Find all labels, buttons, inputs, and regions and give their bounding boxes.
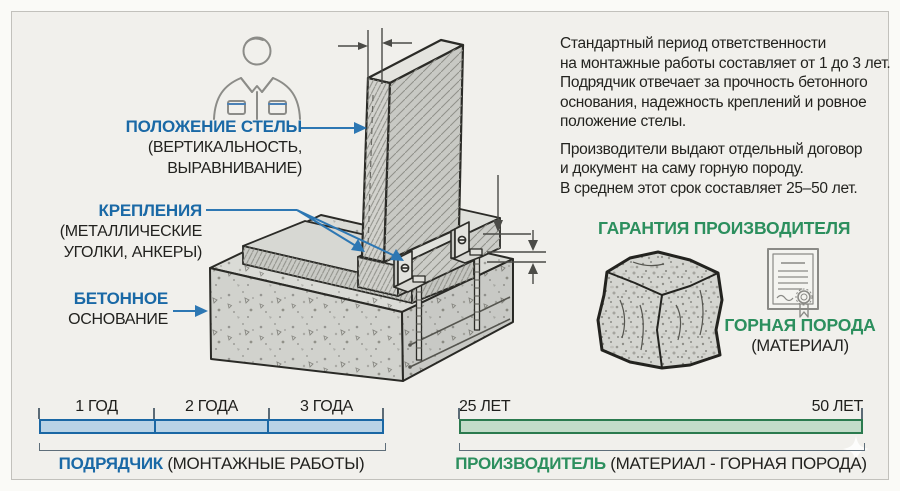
leader-arrow-foundation: [173, 305, 208, 317]
stela-position-label: ПОЛОЖЕНИЕ СТЕЛЫ (ВЕРТИКАЛЬНОСТЬ, ВЫРАВНИ…: [60, 116, 302, 179]
foundation-label: БЕТОННОЕ ОСНОВАНИЕ: [18, 288, 168, 330]
manufacturer-guarantee-heading: ГАРАНТИЯ ПРОИЗВОДИТЕЛЯ: [598, 218, 850, 239]
timeline-tick: [153, 408, 155, 419]
material-title: ГОРНАЯ ПОРОДА: [712, 314, 888, 336]
timeline-tick-label: 1 ГОД: [39, 398, 154, 416]
manufacturer-caption-bold: ПРОИЗВОДИТЕЛЬ: [455, 454, 606, 473]
manufacturer-caption: ПРОИЗВОДИТЕЛЬ (МАТЕРИАЛ - ГОРНАЯ ПОРОДА): [439, 454, 883, 474]
timeline-tick: [861, 408, 863, 419]
timeline-tick-label: 25 ЛЕТ: [459, 398, 510, 416]
infographic-card: ПОЛОЖЕНИЕ СТЕЛЫ (ВЕРТИКАЛЬНОСТЬ, ВЫРАВНИ…: [0, 0, 900, 491]
stela-drawing: [362, 40, 463, 262]
text-line: Производители выдают отдельный договор: [560, 140, 898, 160]
text-line: В среднем этот срок составляет 25–50 лет…: [560, 179, 898, 199]
text-line: основания, надежность креплений и ровное: [560, 93, 898, 113]
certificate-icon: [768, 249, 818, 317]
timeline-tick-label: 2 ГОДА: [154, 398, 269, 416]
manufacturer-timeline-bar: [459, 419, 863, 434]
leader-arrow-position: [300, 122, 367, 134]
text-line: положение стелы.: [560, 112, 898, 132]
manufacturer-timeline-labels: 25 ЛЕТ 50 ЛЕТ: [459, 398, 863, 416]
fixings-label: КРЕПЛЕНИЯ (МЕТАЛЛИЧЕСКИЕ УГОЛКИ, АНКЕРЫ): [18, 200, 202, 263]
worker-icon: [214, 38, 300, 120]
paragraph-contractor-warranty: Стандартный период ответственности на мо…: [560, 34, 898, 132]
text-line: Стандартный период ответственности: [560, 34, 898, 54]
contractor-timeline-labels: 1 ГОД 2 ГОДА 3 ГОДА: [39, 398, 384, 416]
bar-divider: [154, 419, 156, 434]
contractor-caption-rest: (МОНТАЖНЫЕ РАБОТЫ): [167, 454, 364, 473]
material-label: ГОРНАЯ ПОРОДА (МАТЕРИАЛ): [712, 314, 888, 357]
manufacturer-caption-rest: (МАТЕРИАЛ - ГОРНАЯ ПОРОДА): [610, 454, 867, 473]
timeline-tick: [458, 408, 460, 419]
contractor-caption: ПОДРЯДЧИК (МОНТАЖНЫЕ РАБОТЫ): [19, 454, 404, 474]
label-sub-line: УГОЛКИ, АНКЕРЫ): [18, 242, 202, 263]
text-line: на монтажные работы составляет от 1 до 3…: [560, 54, 898, 74]
timeline-tick-label: 50 ЛЕТ: [812, 398, 863, 416]
label-sub-line: ВЫРАВНИВАНИЕ): [60, 158, 302, 179]
label-title: КРЕПЛЕНИЯ: [18, 200, 202, 221]
info-text-block: Стандартный период ответственности на мо…: [560, 34, 898, 198]
bar-divider: [267, 419, 269, 434]
label-title: БЕТОННОЕ: [18, 288, 168, 309]
label-title: ПОЛОЖЕНИЕ СТЕЛЫ: [60, 116, 302, 137]
manufacturer-bracket: [459, 443, 865, 451]
timeline-tick-label: 3 ГОДА: [269, 398, 384, 416]
timeline-tick: [382, 408, 384, 419]
label-sub-line: (ВЕРТИКАЛЬНОСТЬ,: [60, 137, 302, 158]
paragraph-manufacturer-warranty: Производители выдают отдельный договор и…: [560, 140, 898, 199]
contractor-bracket: [39, 443, 386, 451]
contractor-caption-bold: ПОДРЯДЧИК: [59, 454, 163, 473]
text-line: и документ на саму горную породу.: [560, 159, 898, 179]
timeline-tick: [268, 408, 270, 419]
timeline-tick: [38, 408, 40, 419]
material-sub: (МАТЕРИАЛ): [712, 336, 888, 357]
text-line: Подрядчик отвечает за прочность бетонног…: [560, 73, 898, 93]
label-sub-line: (МЕТАЛЛИЧЕСКИЕ: [18, 221, 202, 242]
rock-icon: [598, 252, 722, 368]
label-sub-line: ОСНОВАНИЕ: [18, 309, 168, 330]
contractor-timeline-bar: [39, 419, 384, 434]
